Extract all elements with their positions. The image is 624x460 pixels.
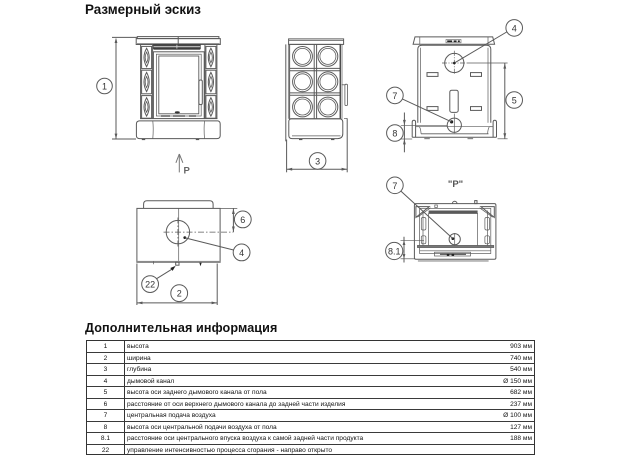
svg-text:3: 3 [315,156,320,166]
svg-text:5: 5 [512,96,517,106]
svg-text:4: 4 [239,248,244,258]
svg-text:P: P [184,166,191,177]
svg-text:1: 1 [102,81,107,91]
svg-text:7: 7 [392,91,397,101]
svg-text:"P": "P" [448,179,463,190]
svg-text:6: 6 [240,215,245,225]
svg-text:22: 22 [145,280,155,290]
svg-text:8: 8 [392,129,397,139]
svg-text:7: 7 [392,181,397,191]
svg-text:8.1: 8.1 [388,246,401,256]
svg-text:4: 4 [512,23,517,33]
svg-text:2: 2 [177,289,182,299]
